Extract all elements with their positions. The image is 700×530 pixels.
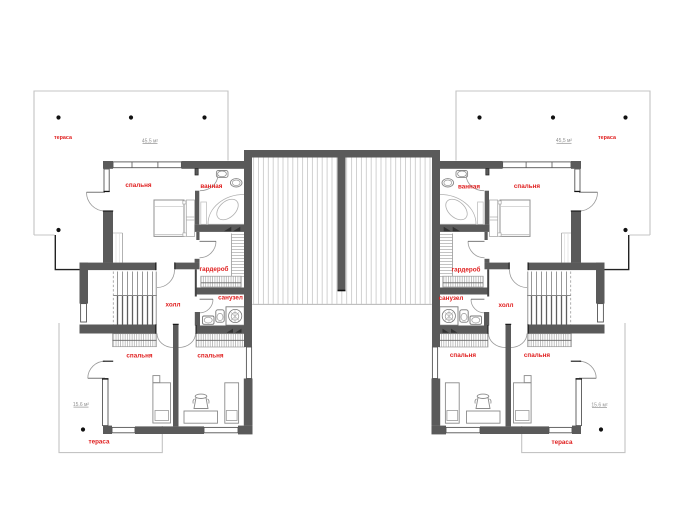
- svg-text:тераса: тераса: [54, 135, 73, 141]
- svg-text:тераса: тераса: [88, 438, 110, 445]
- svg-text:гардероб: гардероб: [452, 265, 481, 273]
- svg-text:спальня: спальня: [524, 352, 550, 359]
- svg-text:спальня: спальня: [197, 352, 223, 359]
- svg-text:санузел: санузел: [218, 294, 243, 301]
- svg-text:ванная: ванная: [200, 183, 222, 190]
- svg-text:спальня: спальня: [450, 352, 476, 359]
- svg-text:холл: холл: [498, 302, 513, 309]
- svg-text:тераса: тераса: [551, 439, 573, 446]
- svg-text:гардероб: гардероб: [200, 265, 229, 273]
- svg-text:спальня: спальня: [126, 352, 152, 359]
- svg-text:тераса: тераса: [598, 135, 617, 141]
- svg-text:ванная: ванная: [458, 183, 480, 190]
- svg-text:холл: холл: [165, 301, 180, 308]
- svg-text:спальня: спальня: [514, 183, 540, 190]
- svg-text:санузел: санузел: [439, 295, 464, 302]
- svg-text:спальня: спальня: [125, 182, 151, 189]
